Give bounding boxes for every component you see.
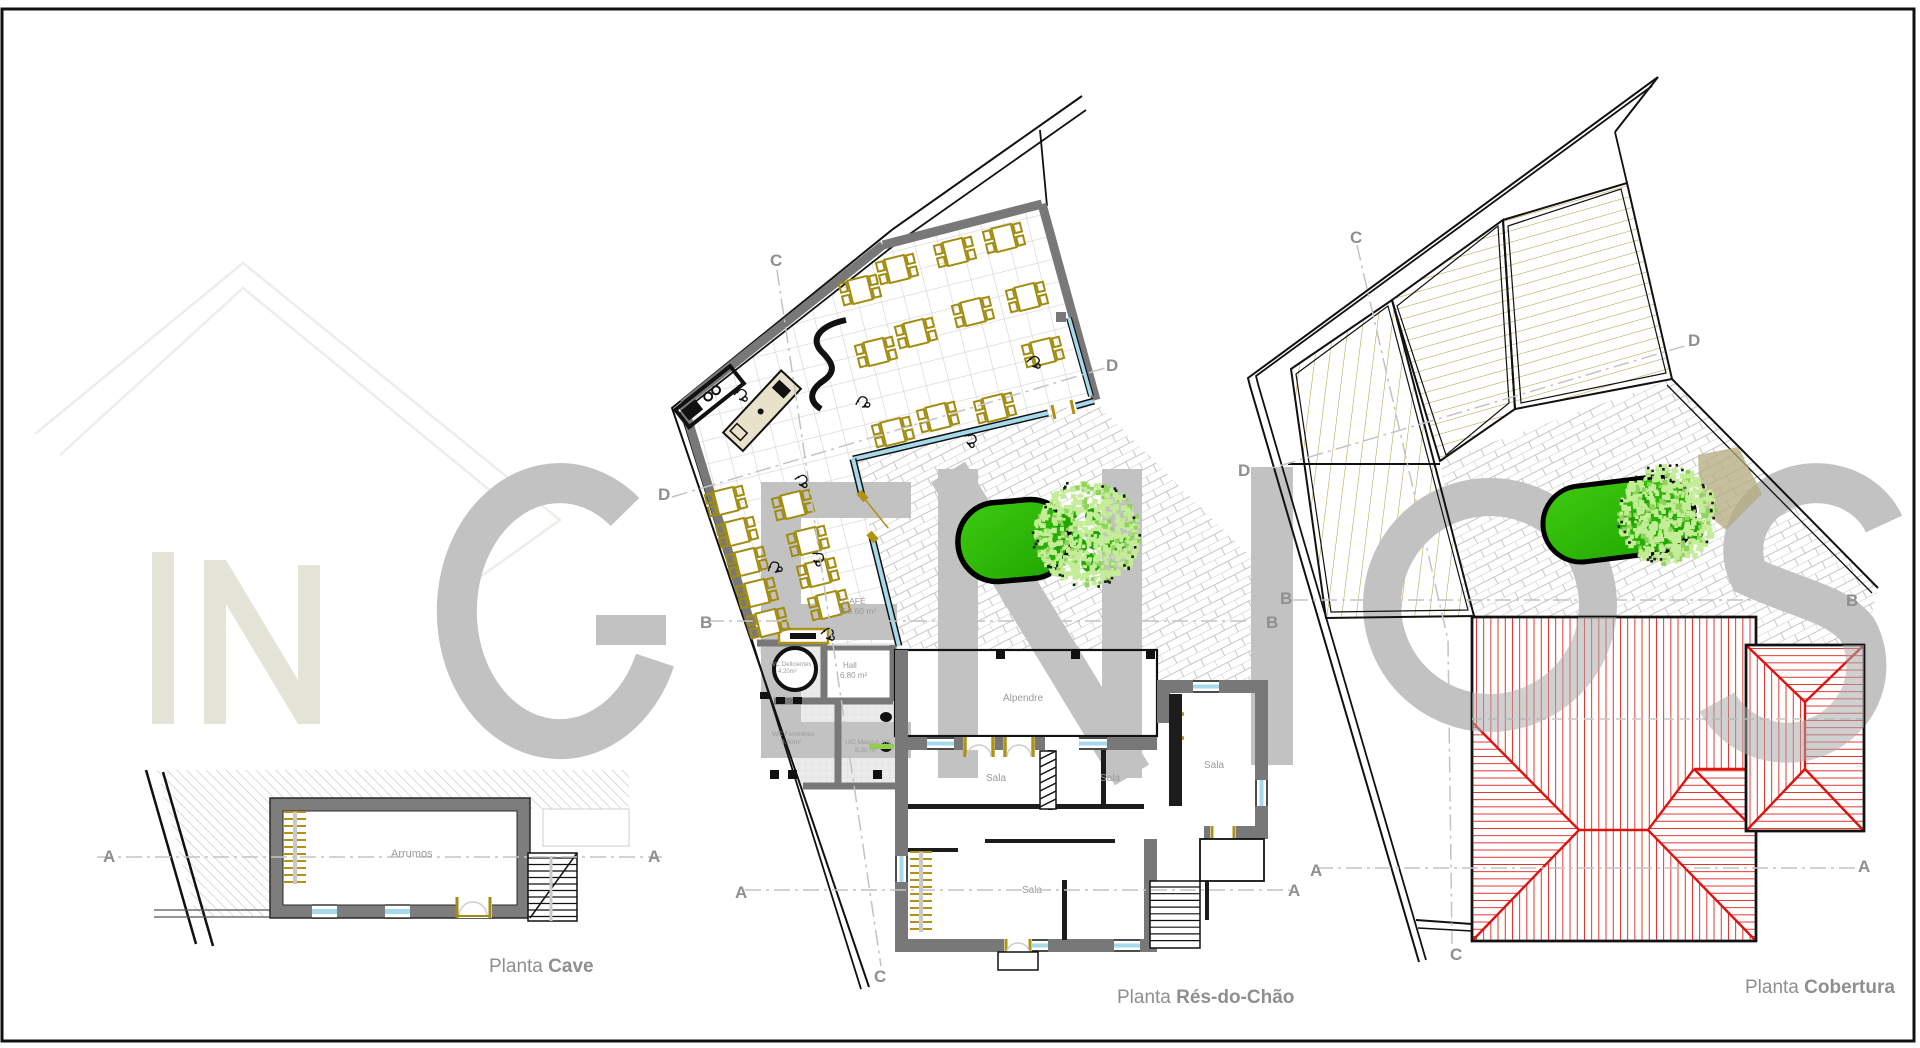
- svg-text:CAFÉ: CAFÉ: [843, 596, 866, 606]
- svg-text:B: B: [1280, 589, 1292, 608]
- svg-text:WC Mascul. Inc: WC Mascul. Inc: [845, 739, 891, 746]
- svg-text:4.20m²: 4.20m²: [778, 669, 797, 675]
- svg-text:153.60 m²: 153.60 m²: [838, 606, 876, 616]
- svg-text:Planta Rés-do-Chão: Planta Rés-do-Chão: [1117, 987, 1294, 1008]
- svg-text:Planta Cobertura: Planta Cobertura: [1745, 977, 1895, 998]
- svg-text:D: D: [1238, 461, 1250, 480]
- svg-text:C: C: [874, 967, 886, 986]
- svg-text:WC Deficientes: WC Deficientes: [770, 662, 811, 668]
- svg-text:Sala: Sala: [1100, 773, 1120, 784]
- svg-text:C: C: [770, 251, 782, 270]
- svg-text:9.60m²: 9.60m²: [781, 739, 802, 746]
- svg-text:C: C: [1450, 945, 1462, 964]
- svg-text:B: B: [1846, 591, 1858, 610]
- svg-text:D: D: [1688, 331, 1700, 350]
- svg-text:WC Femininos: WC Femininos: [772, 731, 815, 738]
- svg-text:Planta Cave: Planta Cave: [489, 956, 594, 977]
- svg-text:Arrumos: Arrumos: [391, 848, 433, 860]
- svg-text:A: A: [648, 847, 660, 866]
- svg-text:B: B: [700, 613, 712, 632]
- svg-text:6.80 m²: 6.80 m²: [840, 671, 867, 680]
- svg-text:Sala: Sala: [1204, 760, 1224, 771]
- svg-text:A: A: [1858, 857, 1870, 876]
- svg-text:C: C: [1350, 228, 1362, 247]
- svg-text:B: B: [1266, 613, 1278, 632]
- svg-text:A: A: [1310, 861, 1322, 880]
- svg-text:D: D: [1106, 356, 1118, 375]
- svg-text:D: D: [658, 485, 670, 504]
- svg-text:Sala: Sala: [986, 773, 1006, 784]
- svg-text:8.30 m²: 8.30 m²: [855, 747, 878, 754]
- svg-text:Alpendre: Alpendre: [1003, 693, 1043, 704]
- svg-text:Hall: Hall: [843, 661, 857, 670]
- svg-text:A: A: [1288, 881, 1300, 900]
- svg-text:A: A: [735, 883, 747, 902]
- svg-text:A: A: [103, 847, 115, 866]
